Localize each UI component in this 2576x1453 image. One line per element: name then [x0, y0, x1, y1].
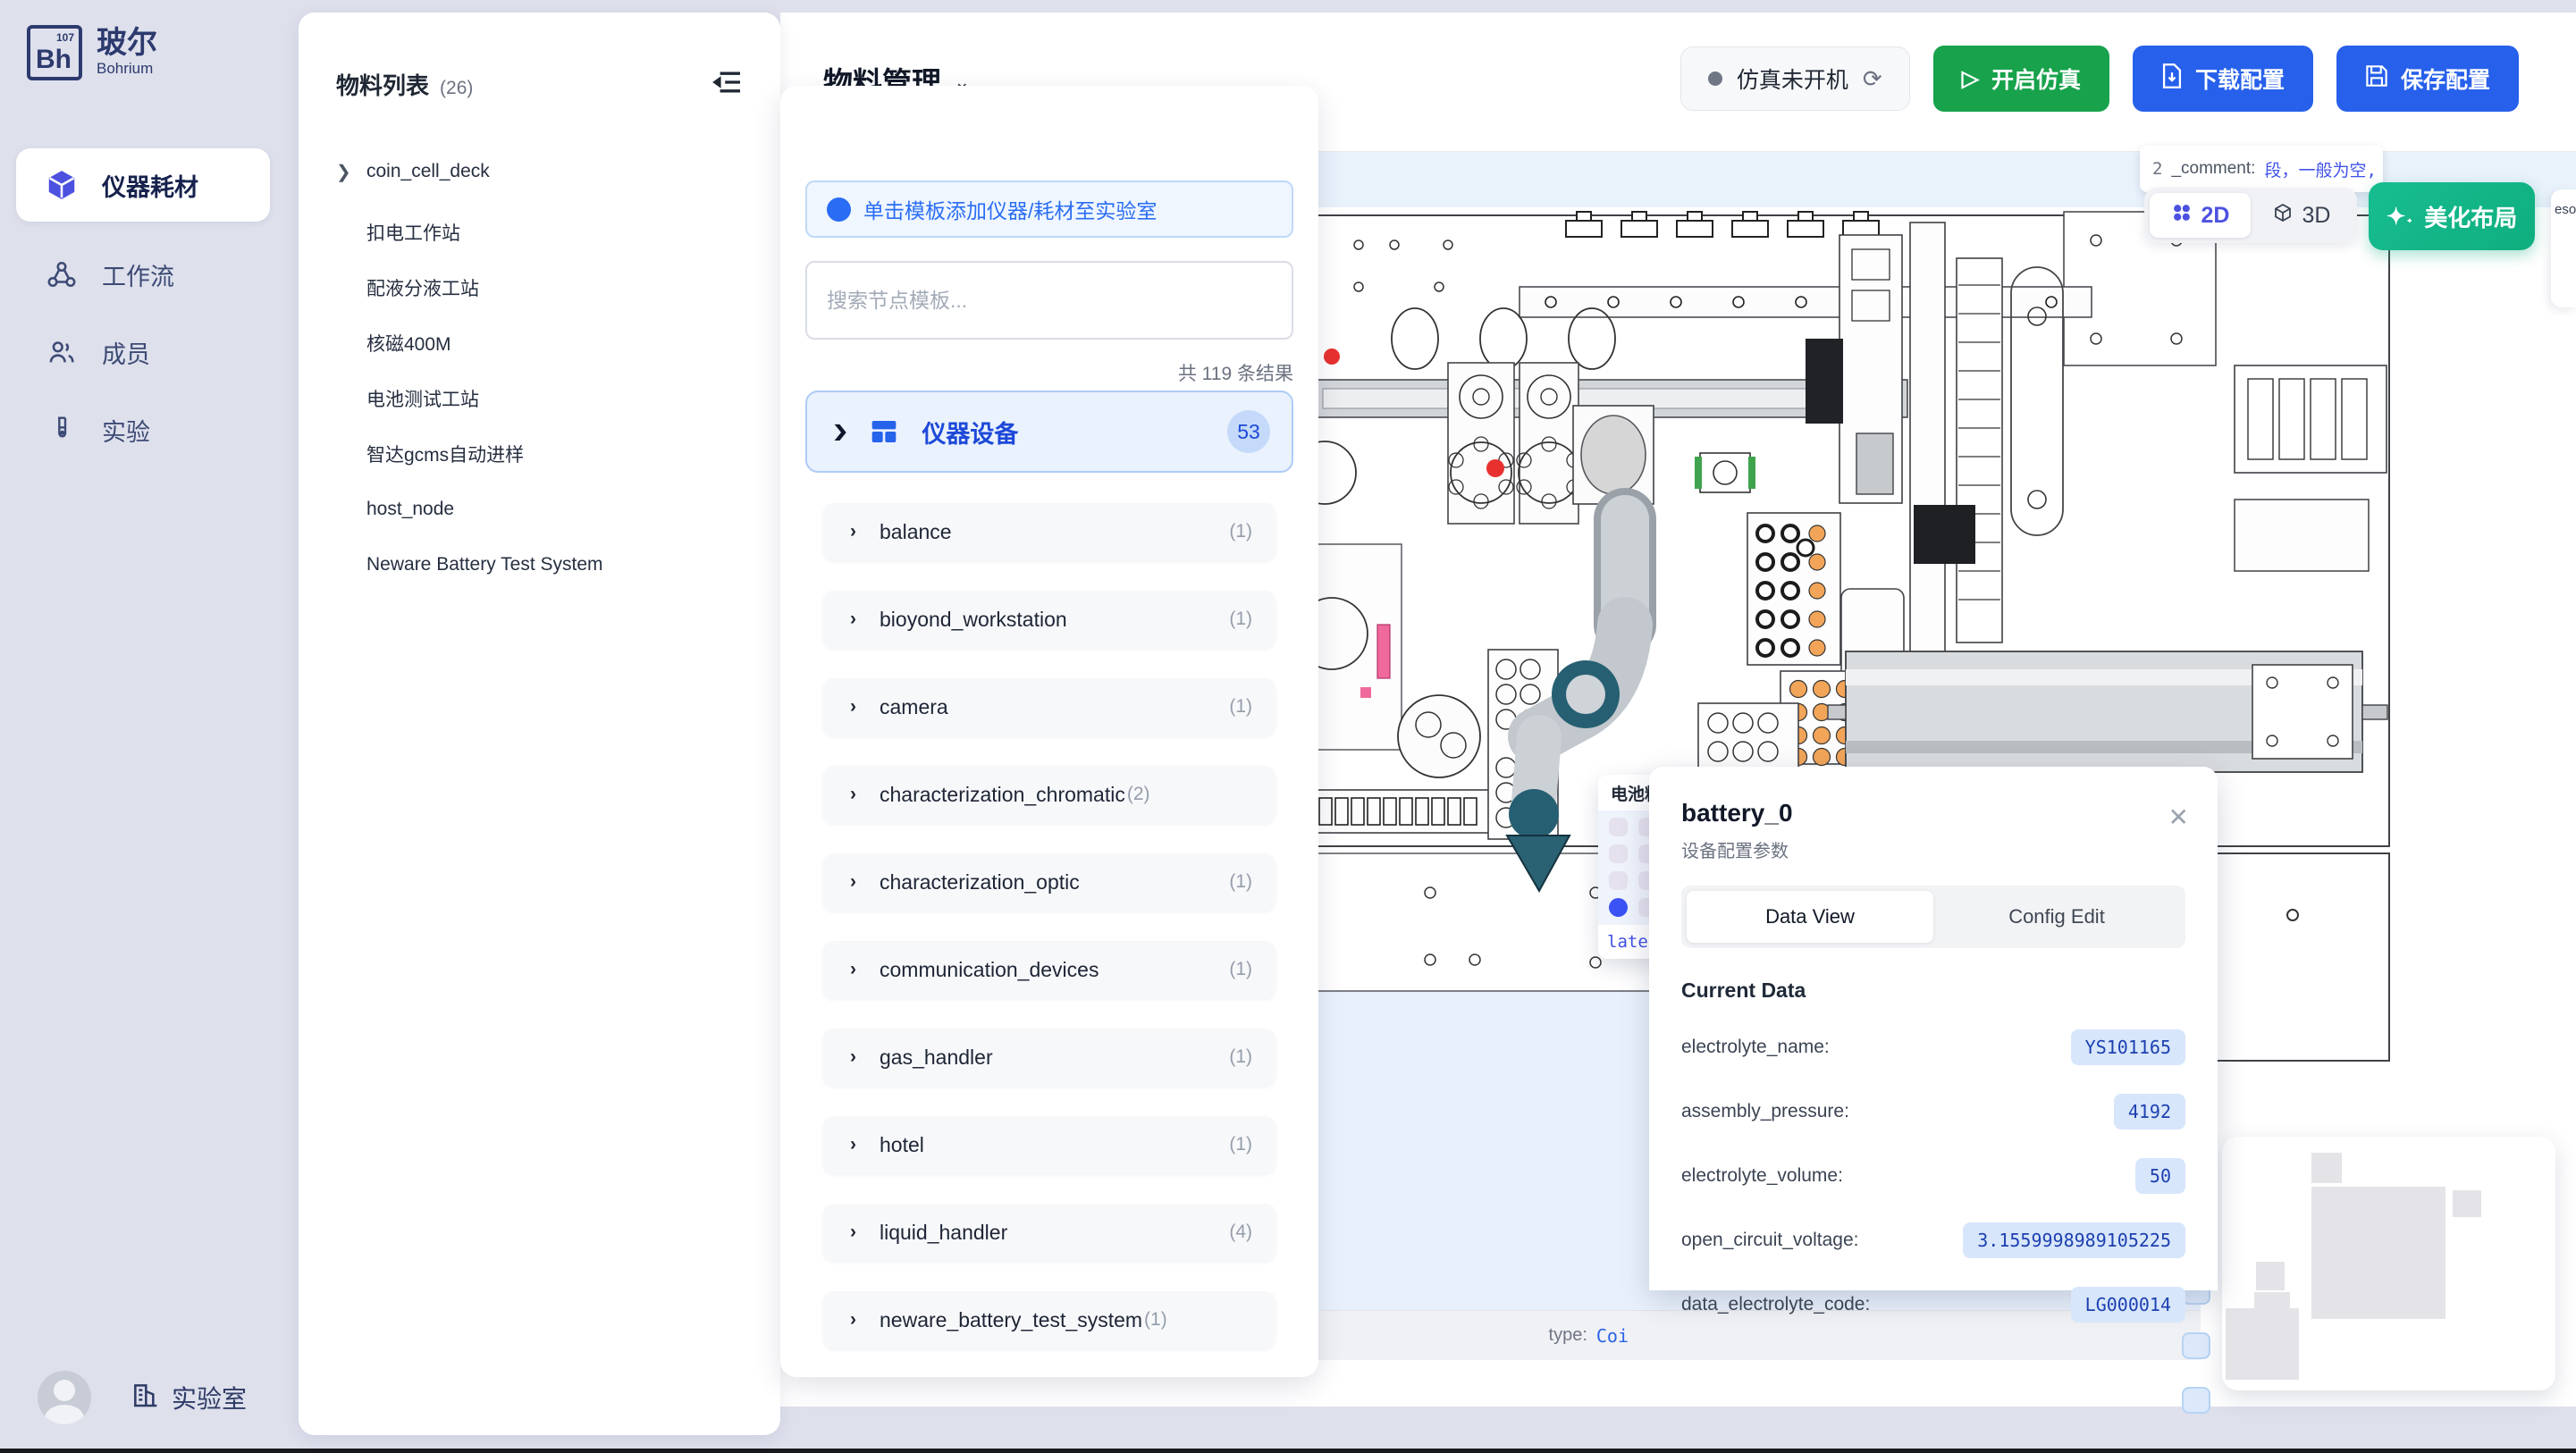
material-item[interactable]: 核磁400M	[336, 323, 753, 363]
download-config-button[interactable]: 下载配置	[2133, 46, 2313, 112]
status-label: 仿真未开机	[1737, 63, 1848, 95]
collapse-panel-icon[interactable]	[712, 70, 743, 95]
material-label: 智达gcms自动进样	[366, 441, 524, 467]
view-3d-button[interactable]: 3D	[2251, 193, 2352, 238]
right-edge-panel: esou	[2551, 189, 2576, 307]
field-row: data_electrolyte_code: LG000014	[1681, 1285, 2185, 1324]
template-name: camera	[880, 695, 948, 719]
test-tube-icon	[45, 413, 79, 447]
sidebar-item-label: 实验	[102, 413, 150, 448]
result-count: 共 119 条结果	[1178, 359, 1293, 386]
material-item-expandable[interactable]: ❯ coin_cell_deck	[336, 152, 753, 191]
template-item-communication-devices[interactable]: › communication_devices (1)	[823, 941, 1275, 998]
lab-label: 实验室	[172, 1380, 247, 1415]
save-config-label: 保存配置	[2401, 63, 2490, 95]
brand-logo[interactable]: 107 Bh 玻尔 Bohrium	[27, 25, 157, 80]
material-label: host_node	[366, 499, 454, 520]
hint-banner: i 单击模板添加仪器/耗材至实验室	[805, 181, 1293, 238]
avatar[interactable]	[38, 1371, 91, 1424]
brand-name-en: Bohrium	[97, 60, 157, 78]
search-input[interactable]	[805, 261, 1293, 340]
save-icon	[2365, 64, 2388, 94]
field-label: electrolyte_name:	[1681, 1037, 1830, 1058]
comment-tooltip: 2 _comment: 段，一般为空, stat	[2140, 146, 2383, 192]
chevron-right-icon: ›	[850, 1046, 856, 1068]
material-item[interactable]: Neware Battery Test System	[336, 545, 753, 584]
status-dot-icon	[1708, 71, 1722, 86]
grid-2d-icon	[2171, 202, 2193, 230]
template-item-bioyond-workstation[interactable]: › bioyond_workstation (1)	[823, 591, 1275, 648]
window-bottom-edge	[0, 1449, 2576, 1453]
field-label: open_circuit_voltage:	[1681, 1230, 1858, 1251]
chevron-right-icon: ›	[850, 1134, 856, 1155]
comment-prefix: 2	[2152, 159, 2162, 179]
template-count: (1)	[1229, 609, 1252, 630]
device-config-popup: battery_0 ✕ 设备配置参数 Data View Config Edit…	[1649, 767, 2218, 1290]
template-count: (1)	[1144, 1309, 1167, 1331]
view-2d-button[interactable]: 2D	[2150, 193, 2251, 238]
current-data-heading: Current Data	[1681, 978, 2185, 1003]
template-panel: i 单击模板添加仪器/耗材至实验室 共 119 条结果 ❯ 仪器设备 53 › …	[780, 86, 1318, 1377]
material-label: 电池测试工站	[366, 385, 479, 412]
material-label: 扣电工作站	[366, 219, 460, 246]
material-label: 配液分液工站	[366, 274, 479, 301]
chevron-right-icon: ›	[850, 521, 856, 542]
sidebar-item-workflow[interactable]: 工作流	[16, 238, 270, 311]
field-value: 4192	[2114, 1094, 2185, 1130]
play-icon: ▷	[1962, 65, 1979, 92]
template-name: communication_devices	[880, 958, 1099, 982]
section-badge: 53	[1227, 410, 1270, 453]
device-tabs: Data View Config Edit	[1681, 886, 2185, 948]
hint-banner-text: 单击模板添加仪器/耗材至实验室	[863, 194, 1157, 224]
tray-cell[interactable]	[1609, 871, 1628, 890]
field-value: YS101165	[2071, 1029, 2185, 1065]
template-count: (2)	[1127, 784, 1150, 805]
sidebar-item-members[interactable]: 成员	[16, 315, 270, 389]
chevron-right-icon: ›	[850, 609, 856, 630]
layout-grid-icon	[870, 417, 898, 446]
materials-count: (26)	[440, 78, 473, 99]
template-item-liquid-handler[interactable]: › liquid_handler (4)	[823, 1204, 1275, 1261]
chevron-right-icon: ›	[850, 959, 856, 980]
template-count: (4)	[1229, 1222, 1252, 1243]
close-icon[interactable]: ✕	[2168, 802, 2189, 832]
field-row: electrolyte_volume: 50	[1681, 1156, 2185, 1196]
template-item-gas-handler[interactable]: › gas_handler (1)	[823, 1029, 1275, 1086]
view-mode-switch: 2D 3D	[2144, 188, 2357, 243]
chevron-right-icon: ›	[850, 784, 856, 805]
template-item-characterization-optic[interactable]: › characterization_optic (1)	[823, 853, 1275, 911]
section-label: 仪器设备	[922, 415, 1018, 449]
material-item[interactable]: 扣电工作站	[336, 213, 753, 252]
comment-key: _comment:	[2171, 159, 2255, 179]
template-item-characterization-chromatic[interactable]: › characterization_chromatic (2)	[823, 766, 1275, 823]
tray-caption: late	[1607, 932, 1648, 952]
tray-cell[interactable]	[1609, 844, 1628, 863]
template-name: bioyond_workstation	[880, 608, 1067, 632]
sidebar-item-label: 工作流	[102, 257, 174, 292]
field-label: assembly_pressure:	[1681, 1101, 1849, 1122]
file-download-icon	[2161, 63, 2183, 95]
template-count: (1)	[1229, 696, 1252, 718]
beautify-layout-button[interactable]: ✦˖ 美化布局	[2369, 182, 2535, 250]
cube-icon	[45, 168, 79, 202]
material-item[interactable]: 智达gcms自动进样	[336, 434, 753, 474]
field-label: electrolyte_volume:	[1681, 1165, 1843, 1187]
template-item-hotel[interactable]: › hotel (1)	[823, 1116, 1275, 1173]
edge-text-fragment: esou	[2555, 202, 2576, 217]
logo-text: Bh	[36, 45, 72, 75]
material-item[interactable]: 电池测试工站	[336, 379, 753, 418]
device-name: battery_0	[1681, 799, 2185, 827]
download-config-label: 下载配置	[2195, 63, 2285, 95]
sidebar-item-label: 成员	[102, 335, 150, 370]
beautify-label: 美化布局	[2424, 200, 2517, 233]
tray-cell-selected[interactable]	[1609, 898, 1628, 917]
field-value: 3.1559998989105225	[1963, 1222, 2185, 1258]
sidebar-item-experiments[interactable]: 实验	[16, 393, 270, 466]
tab-config-edit[interactable]: Config Edit	[1933, 891, 2180, 943]
workflow-icon	[45, 257, 79, 291]
material-item[interactable]: 配液分液工站	[336, 268, 753, 307]
material-label: 核磁400M	[366, 330, 451, 357]
view-3d-label: 3D	[2302, 203, 2331, 229]
lab-switcher[interactable]: 实验室	[130, 1380, 247, 1415]
template-count: (1)	[1229, 521, 1252, 542]
device-subtitle: 设备配置参数	[1681, 836, 2185, 862]
template-name: gas_handler	[880, 1046, 993, 1070]
template-name: characterization_chromatic	[880, 783, 1125, 807]
template-name: liquid_handler	[880, 1221, 1007, 1245]
material-label: Neware Battery Test System	[366, 554, 603, 575]
chevron-right-icon: ›	[850, 1309, 856, 1331]
zone-caption-value: Coi	[1596, 1325, 1629, 1347]
template-item-neware-battery-test-system[interactable]: › neware_battery_test_system (1)	[823, 1291, 1275, 1348]
template-item-camera[interactable]: › camera (1)	[823, 678, 1275, 735]
template-count: (1)	[1229, 1046, 1252, 1068]
refresh-icon[interactable]: ⟳	[1863, 65, 1882, 93]
template-name: hotel	[880, 1133, 924, 1157]
chevron-right-icon: ›	[850, 871, 856, 893]
view-2d-label: 2D	[2201, 203, 2230, 229]
materials-panel: 物料列表 (26) ❯ coin_cell_deck 扣电工作站 配液分液工站 …	[299, 13, 780, 1435]
sidebar-item-instruments[interactable]: 仪器耗材	[16, 148, 270, 222]
section-instrument-devices[interactable]: ❯ 仪器设备 53	[805, 391, 1293, 473]
chevron-right-icon: ›	[850, 1222, 856, 1243]
template-count: (1)	[1229, 959, 1252, 980]
tray-cell[interactable]	[1609, 818, 1628, 836]
logo-sup: 107	[56, 31, 74, 44]
field-value: LG000014	[2071, 1287, 2185, 1323]
bottom-strip	[780, 1407, 2576, 1430]
brand-name-cn: 玻尔	[97, 28, 157, 60]
save-config-button[interactable]: 保存配置	[2336, 46, 2519, 112]
materials-title: 物料列表	[336, 68, 429, 101]
material-label: coin_cell_deck	[366, 161, 490, 182]
field-row: assembly_pressure: 4192	[1681, 1092, 2185, 1131]
users-icon	[45, 335, 79, 369]
material-item[interactable]: host_node	[336, 490, 753, 529]
template-count: (1)	[1229, 1134, 1252, 1155]
start-simulation-button[interactable]: ▷ 开启仿真	[1933, 46, 2109, 112]
start-simulation-label: 开启仿真	[1991, 63, 2081, 95]
sparkles-icon: ✦˖	[2387, 203, 2413, 231]
field-value: 50	[2135, 1158, 2185, 1194]
chevron-down-icon: ❯	[832, 423, 848, 441]
cube-3d-icon	[2272, 202, 2294, 230]
comment-value: 段，一般为空, stat	[2264, 157, 2383, 181]
sidebar-item-label: 仪器耗材	[102, 168, 198, 203]
field-row: electrolyte_name: YS101165	[1681, 1028, 2185, 1067]
field-label: data_electrolyte_code:	[1681, 1294, 1870, 1315]
chevron-right-icon: ❯	[336, 161, 366, 183]
tab-data-view[interactable]: Data View	[1687, 891, 1933, 943]
simulation-status[interactable]: 仿真未开机 ⟳	[1680, 46, 1910, 111]
template-name: neware_battery_test_system	[880, 1308, 1142, 1332]
template-item-balance[interactable]: › balance (1)	[823, 503, 1275, 560]
sidebar: 107 Bh 玻尔 Bohrium 仪器耗材 工作流 成员 实验	[0, 0, 299, 1453]
field-row: open_circuit_voltage: 3.1559998989105225	[1681, 1221, 2185, 1260]
chevron-right-icon: ›	[850, 696, 856, 718]
template-name: characterization_optic	[880, 870, 1080, 894]
zone-caption-key: type:	[1549, 1325, 1587, 1346]
minimap[interactable]	[2222, 1137, 2555, 1390]
template-count: (1)	[1229, 871, 1252, 893]
bohrium-logo-icon: 107 Bh	[27, 25, 82, 80]
template-name: balance	[880, 520, 952, 544]
building-icon	[130, 1381, 159, 1415]
info-icon: i	[827, 197, 851, 222]
